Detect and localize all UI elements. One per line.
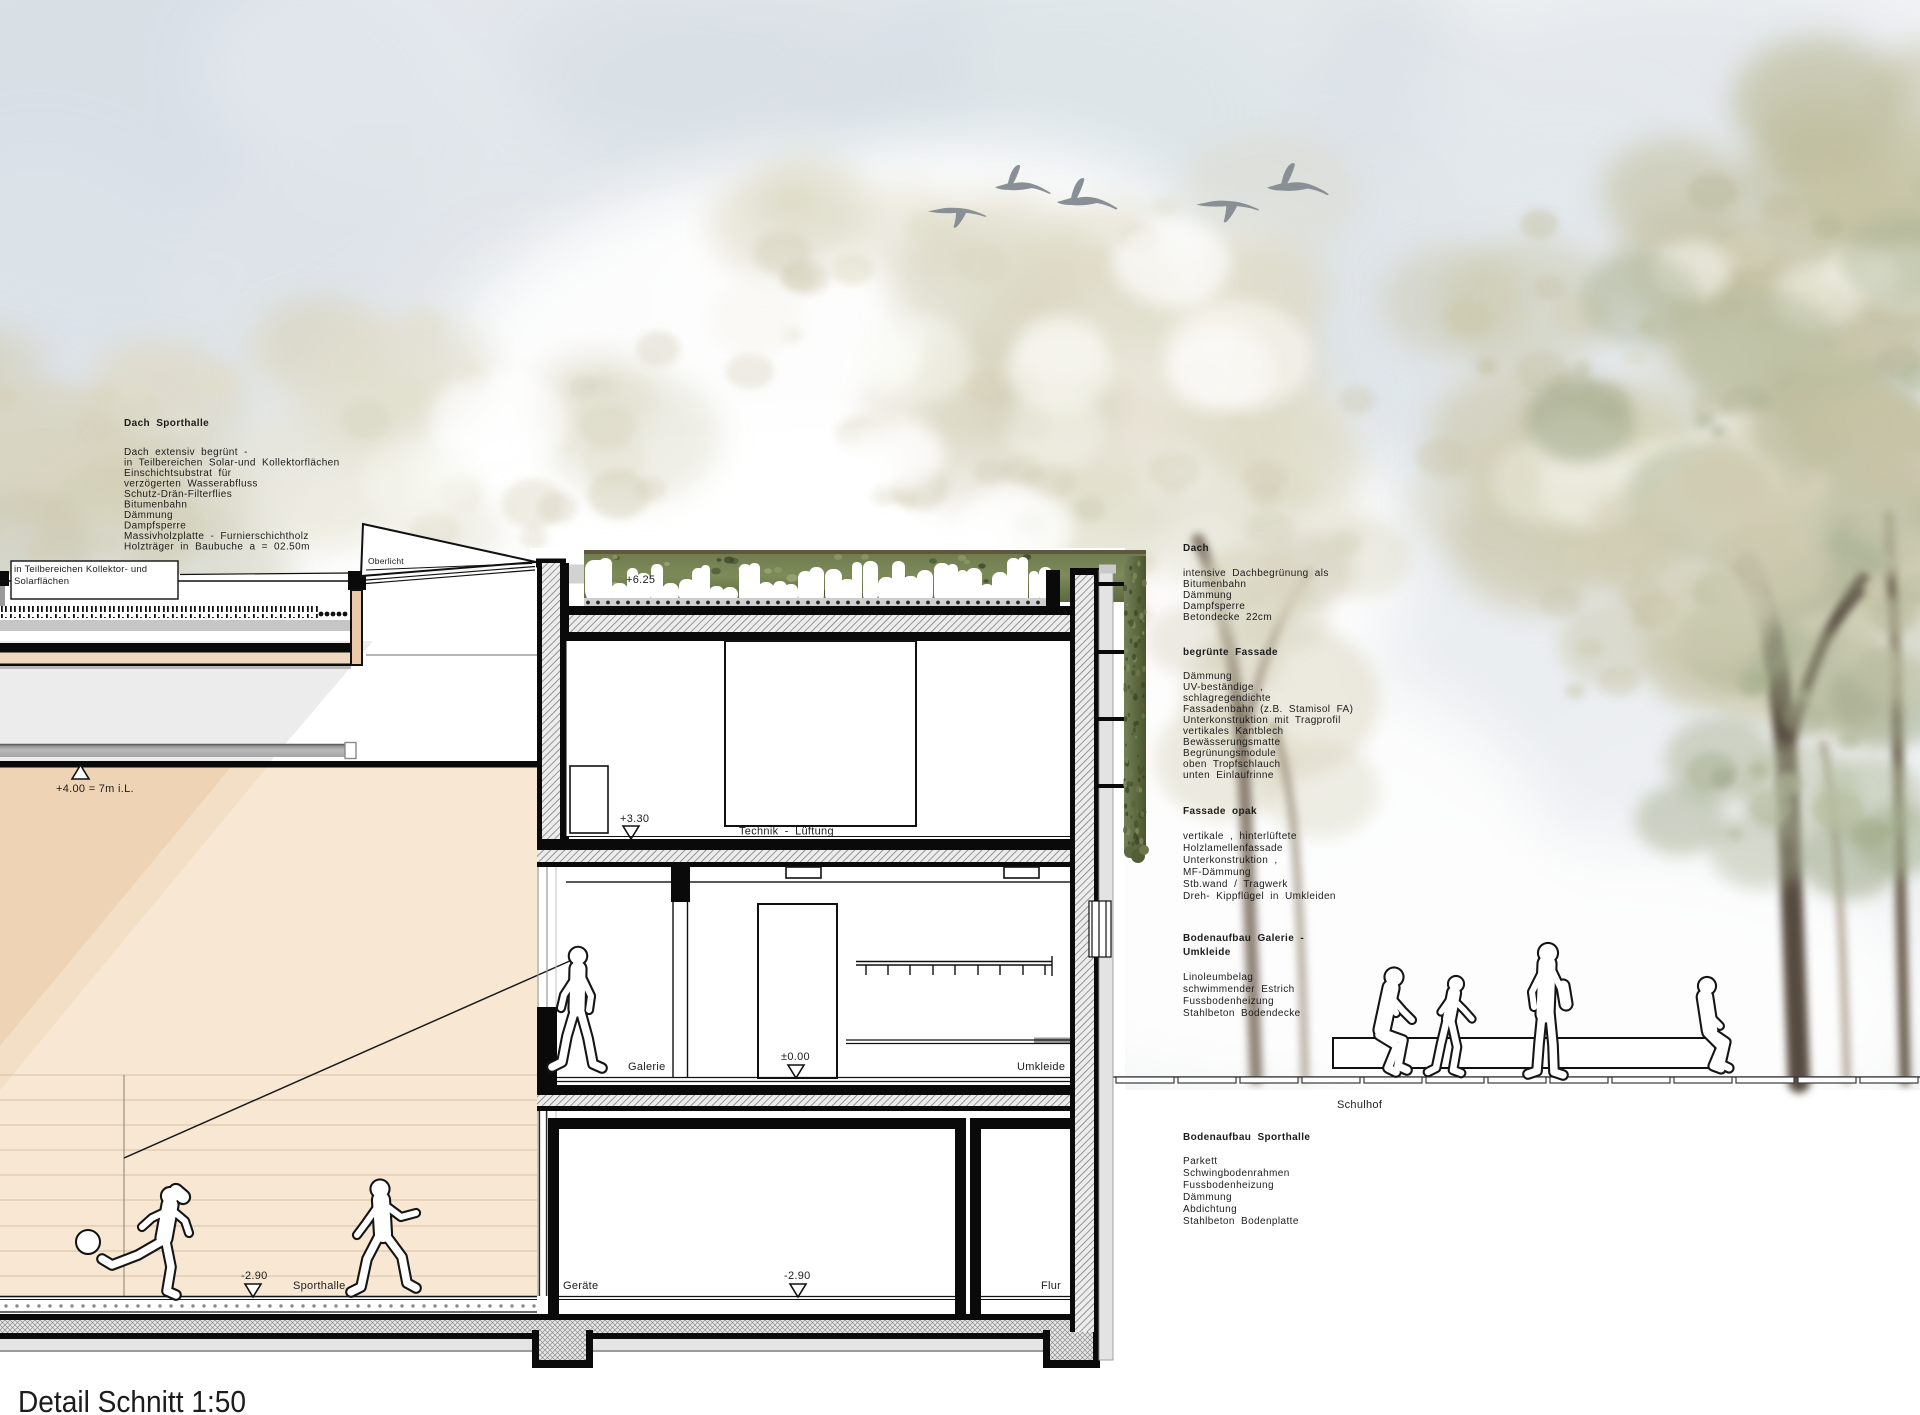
svg-text:in Teilbereichen Solar-und K: in Teilbereichen Solar-und Kollektorfläc… — [124, 458, 340, 469]
svg-text:Oberlicht: Oberlicht — [368, 556, 404, 566]
svg-text:schlagregendichte: schlagregendichte — [1183, 693, 1271, 704]
svg-text:Geräte: Geräte — [563, 1280, 598, 1292]
svg-text:+4.00 = 7m i.L.: +4.00 = 7m i.L. — [56, 783, 134, 795]
svg-text:Technik - Lüftung: Technik - Lüftung — [739, 826, 834, 838]
svg-text:Betondecke 22cm: Betondecke 22cm — [1183, 612, 1272, 623]
svg-text:Abdichtung: Abdichtung — [1183, 1204, 1237, 1215]
svg-text:Bitumenbahn: Bitumenbahn — [124, 500, 187, 511]
svg-text:Dach extensiv begrünt -: Dach extensiv begrünt - — [124, 447, 248, 458]
svg-text:Dampfsperre: Dampfsperre — [1183, 601, 1245, 612]
svg-text:Parkett: Parkett — [1183, 1156, 1217, 1167]
svg-text:unten Einlaufrinne: unten Einlaufrinne — [1183, 770, 1274, 781]
svg-text:schwimmender Estrich: schwimmender Estrich — [1183, 984, 1295, 995]
svg-text:Stahlbeton Bodendecke: Stahlbeton Bodendecke — [1183, 1008, 1301, 1019]
svg-text:vertikales Kantblech: vertikales Kantblech — [1183, 726, 1284, 737]
svg-text:Bodenaufbau Galerie -: Bodenaufbau Galerie - — [1183, 933, 1304, 944]
svg-text:-2.90: -2.90 — [784, 1270, 811, 1282]
svg-text:Dach Sporthalle: Dach Sporthalle — [124, 418, 209, 429]
svg-text:Solarflächen: Solarflächen — [14, 576, 69, 587]
svg-text:Linoleumbelag: Linoleumbelag — [1183, 972, 1253, 983]
svg-text:begrünte Fassade: begrünte Fassade — [1183, 647, 1278, 658]
svg-text:Einschichtsubstrat für: Einschichtsubstrat für — [124, 468, 232, 479]
svg-text:Schulhof: Schulhof — [1337, 1099, 1383, 1111]
svg-text:+6.25: +6.25 — [626, 574, 655, 586]
svg-text:Stb.wand / Tragwerk: Stb.wand / Tragwerk — [1183, 879, 1288, 890]
svg-text:intensive Dachbegrünung als: intensive Dachbegrünung als — [1183, 568, 1329, 579]
svg-text:±0.00: ±0.00 — [781, 1051, 810, 1063]
svg-text:Bodenaufbau Sporthalle: Bodenaufbau Sporthalle — [1183, 1132, 1310, 1143]
svg-text:Dampfsperre: Dampfsperre — [124, 521, 186, 532]
svg-text:vertikale , hinterlüftete: vertikale , hinterlüftete — [1183, 831, 1297, 842]
svg-text:Fassade opak: Fassade opak — [1183, 806, 1257, 817]
svg-text:verzögerten Wasserabfluss: verzögerten Wasserabfluss — [124, 479, 258, 490]
svg-text:in Teilbereichen Kollektor- u: in Teilbereichen Kollektor- und — [14, 564, 147, 575]
svg-text:Holzträger in Baubuche a = 0: Holzträger in Baubuche a = 02.50m — [124, 542, 310, 553]
svg-text:Galerie: Galerie — [628, 1061, 666, 1073]
svg-text:Dach: Dach — [1183, 543, 1209, 554]
svg-text:Bitumenbahn: Bitumenbahn — [1183, 579, 1246, 590]
svg-text:Dämmung: Dämmung — [124, 510, 173, 521]
svg-text:Dämmung: Dämmung — [1183, 590, 1232, 601]
svg-text:Flur: Flur — [1041, 1280, 1061, 1292]
svg-text:Dreh- Kippflügel in Umkleide: Dreh- Kippflügel in Umkleiden — [1183, 891, 1336, 902]
svg-text:Umkleide: Umkleide — [1017, 1061, 1065, 1073]
svg-text:Detail Schnitt 1:50: Detail Schnitt 1:50 — [18, 1384, 246, 1415]
svg-text:-2.90: -2.90 — [241, 1270, 268, 1282]
svg-text:Fussbodenheizung: Fussbodenheizung — [1183, 1180, 1274, 1191]
svg-text:Umkleide: Umkleide — [1183, 947, 1231, 958]
svg-text:Unterkonstruktion ,: Unterkonstruktion , — [1183, 855, 1278, 866]
svg-text:Unterkonstruktion mit Tragp: Unterkonstruktion mit Tragprofil — [1183, 715, 1341, 726]
svg-text:Bewässerungsmatte: Bewässerungsmatte — [1183, 737, 1280, 748]
svg-text:oben Tropfschlauch: oben Tropfschlauch — [1183, 759, 1280, 770]
svg-text:Dämmung: Dämmung — [1183, 1192, 1232, 1203]
svg-text:Begrünungsmodule: Begrünungsmodule — [1183, 748, 1276, 759]
svg-text:MF-Dämmung: MF-Dämmung — [1183, 867, 1251, 878]
svg-text:Fussbodenheizung: Fussbodenheizung — [1183, 996, 1274, 1007]
svg-text:UV-beständige ,: UV-beständige , — [1183, 682, 1263, 693]
svg-text:Fassadenbahn (z.B. Stamisol: Fassadenbahn (z.B. Stamisol FA) — [1183, 704, 1353, 715]
svg-text:Massivholzplatte - Furniersc: Massivholzplatte - Furnierschichtholz — [124, 531, 309, 542]
svg-text:Schwingbodenrahmen: Schwingbodenrahmen — [1183, 1168, 1290, 1179]
svg-text:Schutz-Drän-Filterflies: Schutz-Drän-Filterflies — [124, 489, 232, 500]
svg-text:+3.30: +3.30 — [620, 813, 649, 825]
svg-text:Sporthalle: Sporthalle — [293, 1280, 346, 1292]
svg-text:Stahlbeton Bodenplatte: Stahlbeton Bodenplatte — [1183, 1216, 1299, 1227]
svg-text:Dämmung: Dämmung — [1183, 671, 1232, 682]
svg-text:Holzlamellenfassade: Holzlamellenfassade — [1183, 843, 1283, 854]
